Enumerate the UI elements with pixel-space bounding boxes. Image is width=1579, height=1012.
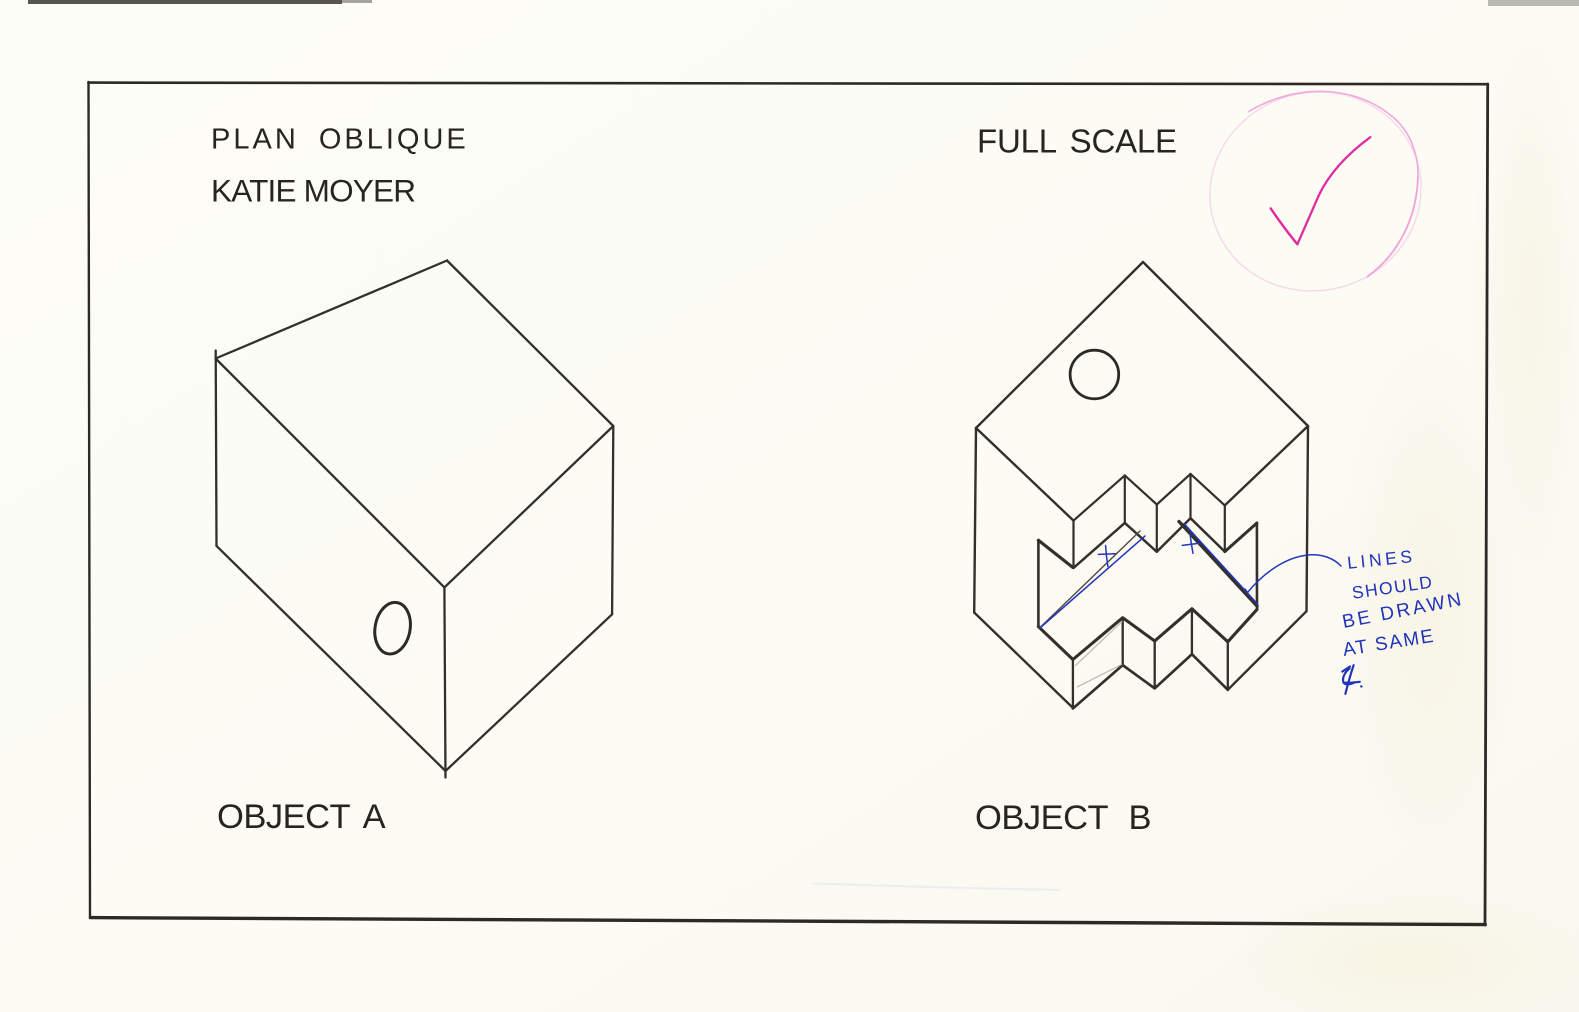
svg-text:OBJECT B: OBJECT B: [975, 799, 1151, 837]
svg-text:KATIE MOYER: KATIE MOYER: [211, 173, 415, 209]
svg-text:FULL SCALE: FULL SCALE: [977, 123, 1177, 160]
svg-text:OBJECT A: OBJECT A: [217, 798, 386, 836]
svg-text:PLAN OBLIQUE: PLAN OBLIQUE: [211, 124, 469, 156]
